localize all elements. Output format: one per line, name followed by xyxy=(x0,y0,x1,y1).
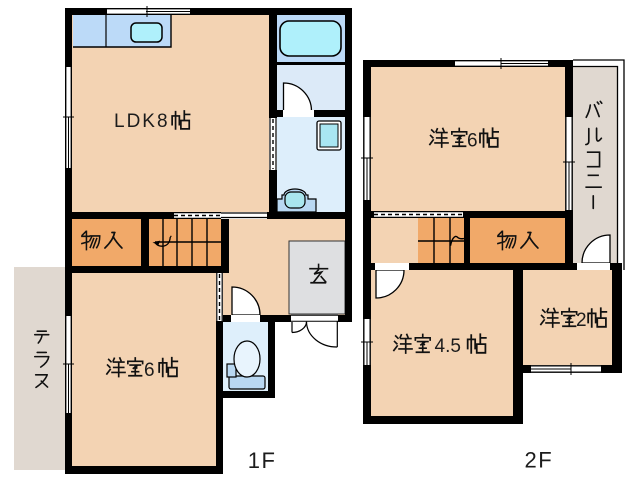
svg-text:6: 6 xyxy=(144,360,155,381)
svg-text:4.5: 4.5 xyxy=(435,336,461,357)
svg-text:1F: 1F xyxy=(248,448,277,473)
svg-text:2: 2 xyxy=(576,310,587,331)
svg-text:6: 6 xyxy=(467,131,478,152)
svg-text:2F: 2F xyxy=(525,448,554,473)
svg-text:LDK8: LDK8 xyxy=(114,111,170,132)
